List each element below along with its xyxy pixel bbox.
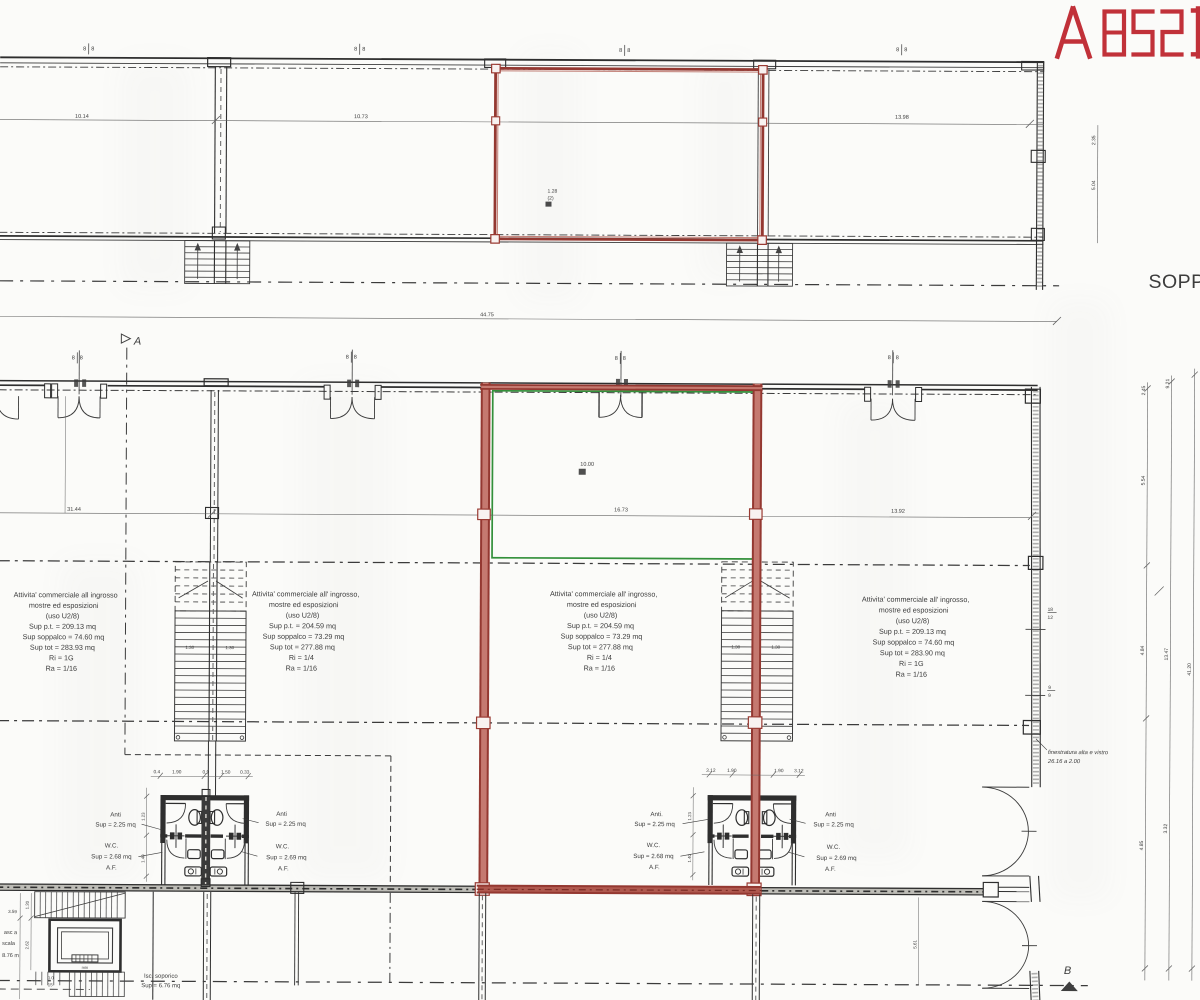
svg-text:31.44: 31.44 bbox=[67, 507, 81, 513]
svg-text:Sup = 2.25 mq: Sup = 2.25 mq bbox=[813, 821, 854, 828]
svg-text:0.33: 0.33 bbox=[240, 770, 250, 776]
svg-text:Anti: Anti bbox=[276, 811, 287, 818]
svg-text:1.40: 1.40 bbox=[140, 854, 145, 863]
svg-text:3.59: 3.59 bbox=[8, 909, 17, 914]
svg-text:(uso U2/8): (uso U2/8) bbox=[584, 610, 618, 619]
svg-text:(uso U2/8): (uso U2/8) bbox=[46, 611, 80, 620]
svg-text:1.30: 1.30 bbox=[731, 644, 740, 649]
svg-text:(2): (2) bbox=[548, 196, 554, 202]
svg-text:W.C.: W.C. bbox=[827, 844, 841, 851]
svg-text:A.F.: A.F. bbox=[649, 864, 660, 871]
svg-text:1.0: 1.0 bbox=[48, 975, 55, 980]
svg-text:26.16 a 2.00: 26.16 a 2.00 bbox=[1047, 759, 1081, 765]
svg-text:10.73: 10.73 bbox=[354, 114, 368, 120]
svg-text:Sup = 2.68 mq: Sup = 2.68 mq bbox=[633, 853, 674, 860]
svg-text:8: 8 bbox=[362, 47, 365, 53]
svg-text:18: 18 bbox=[1048, 607, 1054, 613]
svg-text:Attivita' commerciale all ingr: Attivita' commerciale all ingrosso bbox=[14, 590, 118, 599]
svg-text:10.00: 10.00 bbox=[580, 462, 594, 468]
svg-text:1.50: 1.50 bbox=[221, 770, 231, 776]
svg-text:Sup soppalco = 74.60 mq: Sup soppalco = 74.60 mq bbox=[23, 632, 105, 641]
svg-text:0.9: 0.9 bbox=[202, 769, 209, 775]
svg-text:8: 8 bbox=[354, 355, 357, 361]
svg-text:Sup = 2.69 mq: Sup = 2.69 mq bbox=[266, 854, 307, 861]
svg-text:A.F.: A.F. bbox=[825, 866, 836, 873]
svg-text:Sup = 6.76 mq: Sup = 6.76 mq bbox=[141, 983, 180, 989]
svg-text:Sup tot = 283.90 mq: Sup tot = 283.90 mq bbox=[880, 648, 945, 657]
svg-text:8: 8 bbox=[896, 355, 899, 361]
svg-text:13.47: 13.47 bbox=[1164, 648, 1170, 661]
svg-text:5.04: 5.04 bbox=[1091, 180, 1097, 190]
svg-text:A.F.: A.F. bbox=[106, 865, 117, 872]
svg-text:mostre ed esposizioni: mostre ed esposizioni bbox=[567, 600, 637, 609]
svg-text:8: 8 bbox=[896, 47, 899, 53]
svg-text:Attivita' commerciale all' ing: Attivita' commerciale all' ingrosso, bbox=[862, 595, 969, 605]
svg-text:A: A bbox=[133, 336, 141, 348]
svg-text:1.30: 1.30 bbox=[771, 645, 780, 650]
svg-text:8: 8 bbox=[623, 356, 626, 362]
svg-text:9: 9 bbox=[1048, 693, 1051, 699]
svg-text:Isc. soporico: Isc. soporico bbox=[144, 974, 178, 980]
svg-text:1.28: 1.28 bbox=[548, 189, 558, 195]
svg-text:Sup soppalco = 73.29 mq: Sup soppalco = 73.29 mq bbox=[263, 632, 345, 641]
svg-text:41.20: 41.20 bbox=[1187, 663, 1193, 676]
svg-text:1.30: 1.30 bbox=[185, 645, 194, 650]
svg-text:2.35: 2.35 bbox=[1091, 135, 1097, 145]
svg-text:scala: scala bbox=[2, 941, 16, 947]
svg-text:Attivita' commerciale all' ing: Attivita' commerciale all' ingrosso, bbox=[550, 589, 657, 599]
svg-text:44.75: 44.75 bbox=[480, 312, 494, 318]
svg-text:Ri = 1/4: Ri = 1/4 bbox=[587, 653, 612, 662]
svg-text:Sup tot = 283.93 mq: Sup tot = 283.93 mq bbox=[30, 643, 95, 652]
svg-text:8: 8 bbox=[83, 46, 86, 52]
svg-text:4.85: 4.85 bbox=[1139, 840, 1145, 850]
svg-text:Ra = 1/16: Ra = 1/16 bbox=[46, 664, 77, 673]
svg-text:Attivita' commerciale all' ing: Attivita' commerciale all' ingrosso, bbox=[252, 589, 359, 599]
svg-text:8: 8 bbox=[888, 355, 891, 361]
svg-text:Sup p.t. = 204.59 mq: Sup p.t. = 204.59 mq bbox=[567, 621, 634, 630]
svg-text:1.90: 1.90 bbox=[774, 768, 784, 774]
svg-text:finestratura alta e vistro: finestratura alta e vistro bbox=[1048, 750, 1109, 756]
svg-text:min: min bbox=[82, 965, 88, 970]
svg-text:(uso U2/8): (uso U2/8) bbox=[896, 616, 930, 625]
svg-text:Ri = 1G: Ri = 1G bbox=[49, 653, 74, 662]
svg-text:Sup soppalco = 73.29 mq: Sup soppalco = 73.29 mq bbox=[561, 632, 643, 641]
svg-text:0.4: 0.4 bbox=[153, 769, 160, 775]
svg-text:1.90: 1.90 bbox=[727, 768, 737, 774]
svg-text:8: 8 bbox=[91, 46, 94, 52]
svg-text:(uso U2/8): (uso U2/8) bbox=[286, 611, 320, 620]
svg-text:Sup = 2.68 mq: Sup = 2.68 mq bbox=[91, 853, 132, 860]
svg-text:8: 8 bbox=[346, 355, 349, 361]
svg-text:1.40: 1.40 bbox=[687, 853, 692, 862]
svg-text:9.21: 9.21 bbox=[1165, 379, 1171, 389]
svg-text:10.14: 10.14 bbox=[75, 114, 89, 120]
svg-text:16.73: 16.73 bbox=[614, 507, 628, 513]
svg-text:8: 8 bbox=[904, 47, 907, 53]
svg-text:Sup soppalco = 74.60 mq: Sup soppalco = 74.60 mq bbox=[873, 637, 955, 646]
svg-text:5.54: 5.54 bbox=[1141, 475, 1147, 485]
svg-text:8: 8 bbox=[80, 355, 83, 361]
svg-text:12: 12 bbox=[1048, 615, 1054, 621]
svg-text:asc a: asc a bbox=[4, 930, 18, 936]
svg-text:Sup p.t. = 209.13 mq: Sup p.t. = 209.13 mq bbox=[879, 627, 946, 636]
svg-text:mostre ed esposizioni: mostre ed esposizioni bbox=[879, 605, 949, 614]
svg-text:Ra = 1/16: Ra = 1/16 bbox=[896, 670, 927, 679]
svg-text:Sup = 2.69 mq: Sup = 2.69 mq bbox=[816, 855, 857, 862]
svg-text:B: B bbox=[1064, 965, 1071, 977]
svg-text:Sup = 2.25 mq: Sup = 2.25 mq bbox=[265, 821, 306, 828]
svg-text:5.61: 5.61 bbox=[912, 939, 917, 948]
svg-text:9: 9 bbox=[1048, 685, 1051, 691]
svg-text:Ra = 1/16: Ra = 1/16 bbox=[286, 664, 317, 673]
svg-text:8: 8 bbox=[615, 356, 618, 362]
svg-text:1.90: 1.90 bbox=[172, 769, 182, 775]
svg-text:Anti.: Anti. bbox=[650, 811, 663, 818]
svg-text:mostre ed esposizioni: mostre ed esposizioni bbox=[269, 600, 339, 609]
svg-text:1.20: 1.20 bbox=[25, 900, 30, 909]
svg-text:8.76 m: 8.76 m bbox=[2, 953, 19, 959]
svg-text:8: 8 bbox=[619, 48, 622, 54]
svg-text:4.84: 4.84 bbox=[1140, 645, 1146, 655]
svg-text:8: 8 bbox=[72, 355, 75, 361]
svg-text:Sup = 2.25 mq: Sup = 2.25 mq bbox=[95, 821, 136, 828]
svg-text:13.98: 13.98 bbox=[895, 115, 909, 121]
svg-text:15: 15 bbox=[48, 982, 53, 987]
svg-text:13.92: 13.92 bbox=[891, 509, 905, 515]
svg-text:1.23: 1.23 bbox=[141, 812, 146, 821]
svg-text:Ra = 1/16: Ra = 1/16 bbox=[584, 663, 615, 672]
svg-text:mostre ed esposizioni: mostre ed esposizioni bbox=[29, 601, 99, 610]
svg-text:8: 8 bbox=[627, 48, 630, 54]
svg-text:Sup tot = 277.88 mq: Sup tot = 277.88 mq bbox=[270, 642, 335, 651]
svg-text:1.30: 1.30 bbox=[225, 645, 234, 650]
svg-text:Ri = 1/4: Ri = 1/4 bbox=[289, 653, 314, 662]
svg-text:Sup tot = 277.88 mq: Sup tot = 277.88 mq bbox=[568, 642, 633, 651]
svg-text:W.C.: W.C. bbox=[647, 842, 661, 849]
svg-text:Sup p.t. = 209.13 mq: Sup p.t. = 209.13 mq bbox=[29, 622, 96, 631]
svg-text:3.12: 3.12 bbox=[706, 768, 716, 774]
svg-text:Ri = 1G: Ri = 1G bbox=[899, 659, 924, 668]
svg-text:2.45: 2.45 bbox=[1141, 385, 1147, 395]
svg-text:Anti: Anti bbox=[825, 811, 836, 818]
svg-text:W.C.: W.C. bbox=[105, 842, 119, 849]
svg-text:Sup p.t. = 204.59 mq: Sup p.t. = 204.59 mq bbox=[269, 621, 336, 630]
svg-text:Sup = 2.25 mq: Sup = 2.25 mq bbox=[634, 821, 675, 828]
svg-text:8: 8 bbox=[354, 47, 357, 53]
svg-text:Anti: Anti bbox=[110, 812, 121, 819]
svg-text:A.F.: A.F. bbox=[278, 865, 289, 872]
svg-text:3.32: 3.32 bbox=[1163, 824, 1169, 834]
svg-text:1.23: 1.23 bbox=[687, 811, 692, 820]
svg-text:SOPP: SOPP bbox=[1149, 271, 1200, 293]
svg-text:W.C.: W.C. bbox=[276, 843, 290, 850]
svg-text:2.62: 2.62 bbox=[24, 940, 29, 949]
svg-text:3.12: 3.12 bbox=[794, 768, 804, 774]
